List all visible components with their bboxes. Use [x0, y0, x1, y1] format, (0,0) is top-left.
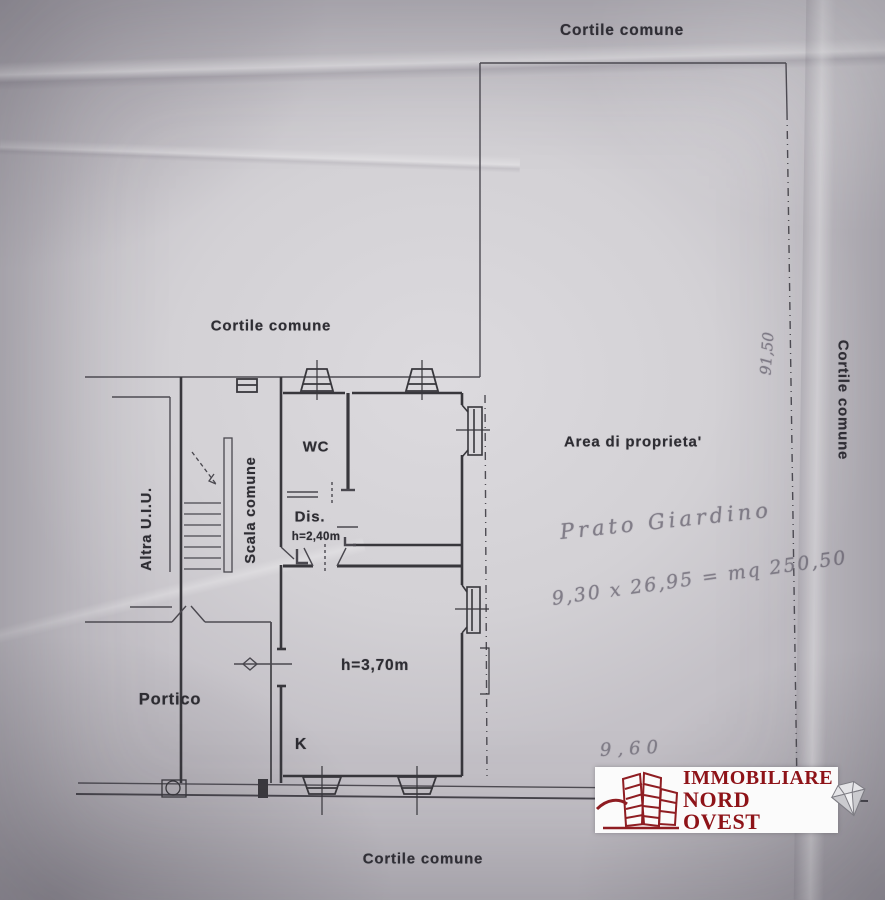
side-window-symbols: [455, 405, 490, 694]
room-label-kitchen: K: [295, 736, 307, 754]
stairs-label: Scala comune: [243, 456, 259, 563]
height-label-main: h=3,70m: [341, 657, 409, 675]
handwritten-bottom-measure: 9,60: [599, 737, 664, 761]
courtyard-label-top: Cortile comune: [560, 22, 684, 40]
room-label-dis: Dis.: [295, 509, 326, 526]
scanned-floorplan-photo: Cortile comune Cortile comune Cortile co…: [0, 0, 885, 900]
agency-logo: IMMOBILIARE NORD OVEST: [595, 767, 838, 833]
property-area-label: Area di proprieta': [564, 434, 702, 451]
agency-logo-line1: IMMOBILIARE: [683, 768, 833, 788]
buildings-icon: [595, 767, 681, 833]
room-label-wc: WC: [303, 439, 330, 456]
courtyard-label-right: Cortile comune: [835, 340, 852, 460]
agency-logo-line2: NORD OVEST: [683, 789, 833, 833]
door-symbols: [172, 482, 358, 670]
courtyard-label-middle: Cortile comune: [211, 318, 331, 335]
floorplan-drawing: [0, 0, 885, 900]
agency-logo-words: IMMOBILIARE NORD OVEST: [683, 768, 833, 833]
bottom-window-symbols: [162, 766, 436, 815]
height-label-dis: h=2,40m: [292, 531, 340, 543]
handwritten-side-measure: 91,50: [757, 332, 778, 376]
room-label-portico: Portico: [139, 691, 201, 710]
courtyard-label-bottom: Cortile comune: [363, 851, 483, 868]
other-unit-label: Altra U.I.U.: [139, 487, 155, 571]
staircase: [184, 438, 232, 572]
